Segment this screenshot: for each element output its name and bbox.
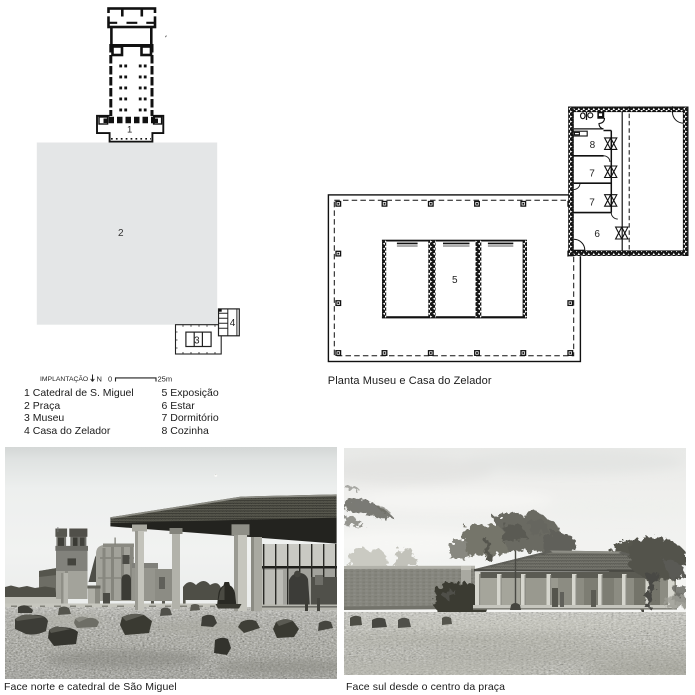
- svg-text:6: 6: [594, 229, 600, 240]
- svg-text:25m: 25m: [158, 375, 173, 384]
- svg-text:N: N: [97, 375, 102, 384]
- svg-text:5: 5: [452, 275, 458, 286]
- svg-text:7: 7: [589, 168, 595, 179]
- svg-text:2: 2: [118, 228, 124, 239]
- svg-text:0: 0: [108, 375, 112, 384]
- svg-text:8: 8: [590, 140, 596, 151]
- svg-text:IMPLANTAÇÃO: IMPLANTAÇÃO: [40, 374, 88, 383]
- svg-text:1: 1: [127, 125, 132, 136]
- svg-text:7: 7: [589, 198, 595, 209]
- svg-text:3: 3: [194, 336, 200, 347]
- svg-text:4: 4: [230, 318, 236, 329]
